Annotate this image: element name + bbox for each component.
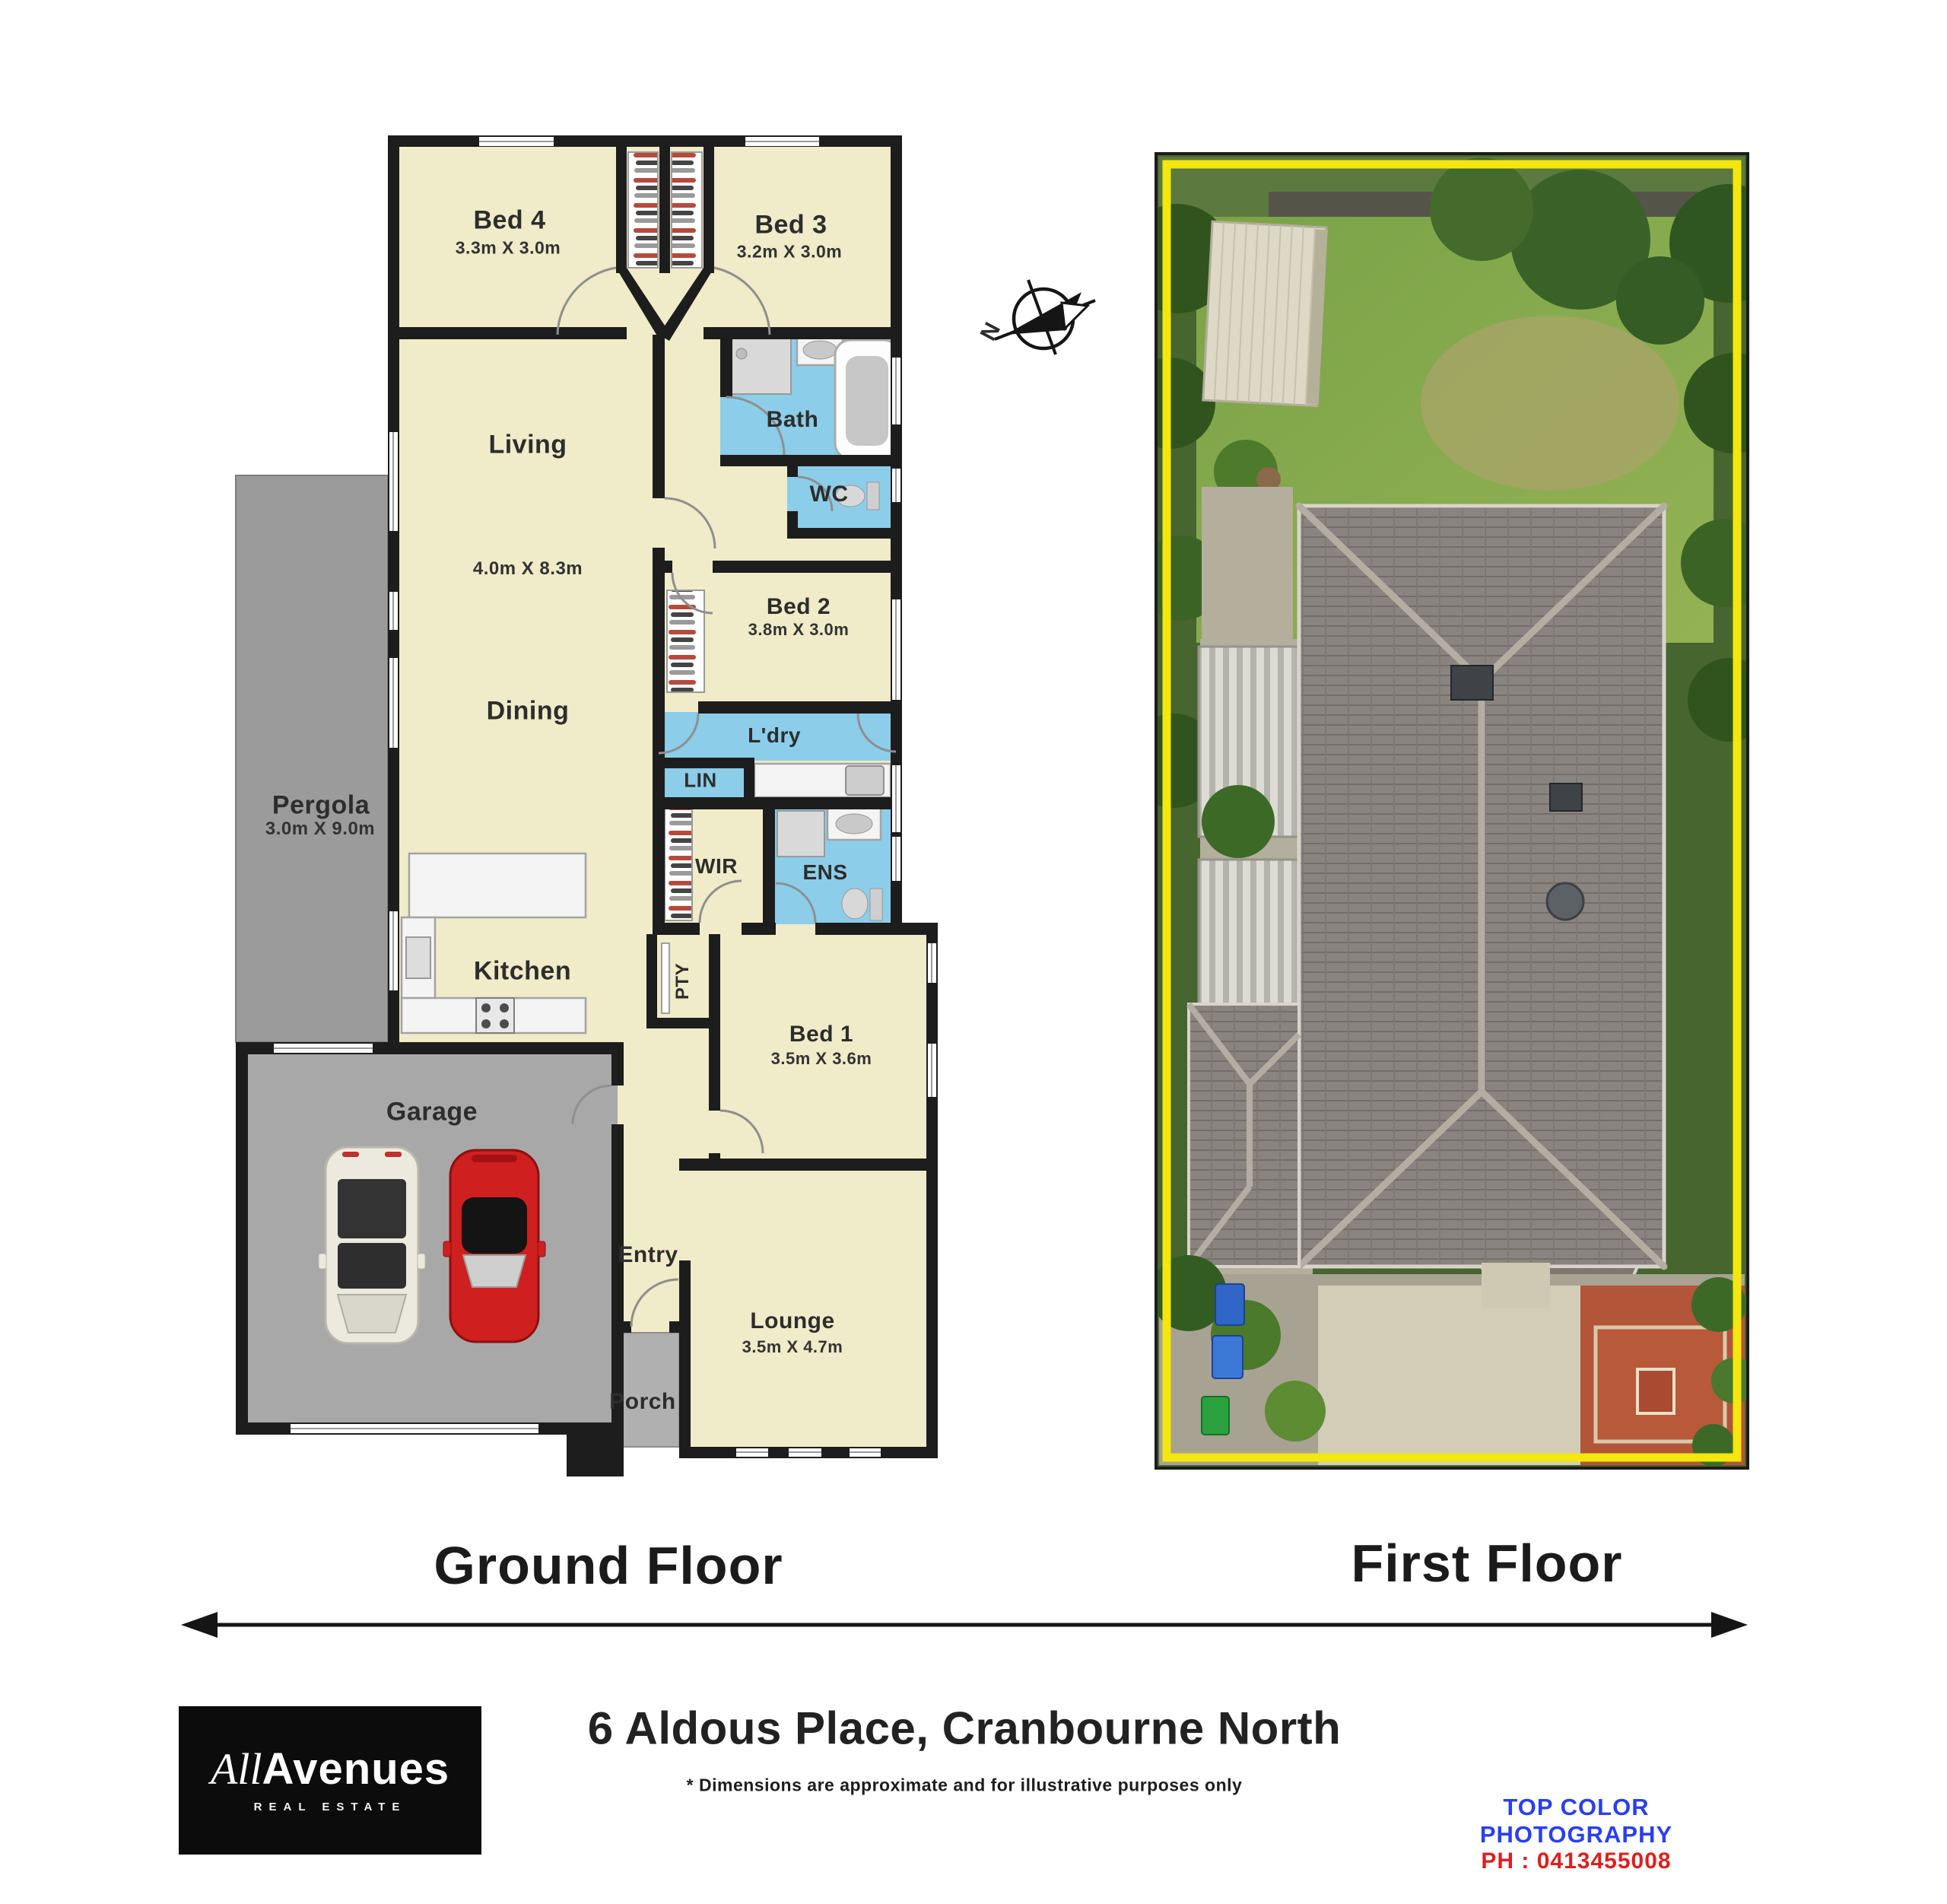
disclaimer-text: * Dimensions are approximate and for ill… [687,1775,1243,1796]
roof-vent [1547,883,1583,920]
shower-bath [724,336,791,394]
bath-label: Bath [767,407,819,433]
pantry-label: PTY [672,963,694,1000]
compass-icon [995,280,1095,354]
garden-shed [1203,221,1328,406]
bed4-dims: 3.3m X 3.0m [456,238,561,259]
entry-label: Entry [618,1242,678,1268]
ground-floor-title: Ground Floor [434,1535,783,1596]
bed1-label: Bed 1 [789,1022,853,1047]
wc-label: WC [810,482,849,507]
lounge-label: Lounge [750,1308,834,1334]
aerial-photo-art [1155,152,1749,1470]
pergola-dims: 3.0m X 9.0m [265,818,375,840]
dining-label: Dining [487,697,570,726]
bed2-robe [667,590,704,692]
shower-ens [777,811,824,857]
agency-logo-wordmark: All Avenues [211,1747,449,1791]
door-mat [1637,1369,1674,1413]
lounge-dims: 3.5m X 4.7m [742,1337,843,1357]
robe-closet-1 [628,152,658,268]
agency-logo: All Avenues REAL ESTATE [179,1706,481,1855]
porch-label: Porch [609,1389,676,1415]
laundry-label: L'dry [748,723,801,748]
bed2-dims: 3.8m X 3.0m [748,620,850,640]
linen-label: LIN [684,769,716,793]
front-yard [1155,1255,1749,1467]
bed1-dims: 3.5m X 3.6m [771,1049,872,1069]
bed2-label: Bed 2 [767,594,831,620]
cooktop [476,998,514,1033]
logo-all-text: All [211,1747,262,1791]
wir-robe [665,808,692,920]
wheelie-bin-1 [1215,1284,1244,1325]
garage-door [291,1424,538,1433]
wir-label: WIR [695,854,738,879]
scale-arrow [181,1612,1748,1638]
ens-label: ENS [802,860,847,885]
photography-credit-phone: PH : 0413455008 [1403,1848,1749,1874]
wheelie-bin-3 [1202,1397,1229,1435]
living-label: Living [488,431,567,460]
white-car [319,1147,425,1343]
robe-closet-2 [672,152,702,268]
photography-credit-name: TOP COLOR PHOTOGRAPHY [1403,1794,1749,1848]
skylight [1451,666,1493,700]
first-floor-title: First Floor [1351,1533,1622,1594]
photography-credit: TOP COLOR PHOTOGRAPHY PH : 0413455008 [1403,1794,1749,1874]
washing-machine [846,766,884,795]
real-estate-floorplan-flyer: { "floor_plan": { "title": "Ground Floor… [0,0,1947,1904]
kitchen-label: Kitchen [474,957,571,987]
porch-step [567,1435,624,1476]
kitchen-island [409,853,586,917]
pergola-label: Pergola [272,791,370,821]
living-dims: 4.0m X 8.3m [473,558,583,580]
ens-toilet [842,888,868,919]
red-car [443,1150,545,1342]
logo-tagline: REAL ESTATE [254,1801,407,1813]
aerial-photo [1155,152,1749,1470]
pergola-floor [236,475,388,1042]
bed4-label: Bed 4 [473,206,545,236]
bed3-label: Bed 3 [754,211,827,240]
bed3-dims: 3.2m X 3.0m [737,242,842,262]
logo-avenues-text: Avenues [262,1747,450,1791]
driveway [1318,1286,1580,1465]
wheelie-bin-2 [1212,1336,1243,1378]
address-title: 6 Aldous Place, Cranbourne North [588,1702,1342,1755]
garage-label: Garage [386,1098,478,1127]
